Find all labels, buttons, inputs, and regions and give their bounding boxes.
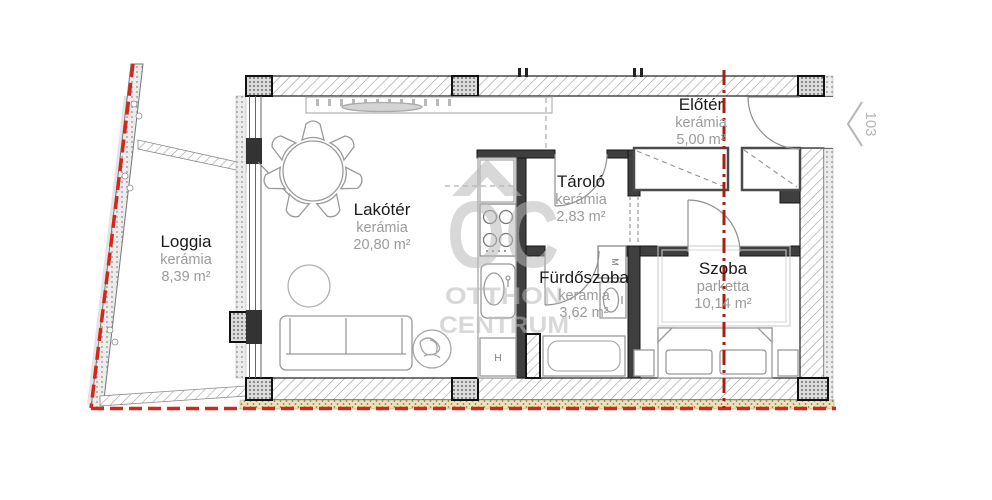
room-area: 5,00 m² — [675, 132, 727, 149]
bed — [658, 328, 772, 378]
washer-label: M — [610, 258, 620, 266]
floor-plan-drawing: OC OTTHON CENTRUM ® 103 H M — [0, 0, 992, 500]
room-name: Szoba — [694, 259, 751, 279]
dining-table — [262, 121, 364, 221]
room-name: Tároló — [555, 172, 607, 192]
nightstand-left — [634, 350, 654, 376]
loggia-top-rail — [138, 140, 246, 172]
sideboard-radiator — [306, 97, 552, 113]
entrance-door — [748, 97, 800, 149]
room-area: 8,39 m² — [160, 269, 212, 286]
room-area: 20,80 m² — [353, 237, 410, 254]
unit-direction-chevron-icon — [848, 102, 862, 146]
room-label-szoba: Szoba parketta 10,14 m² — [694, 259, 751, 312]
pillow-right — [720, 350, 766, 374]
right-wall — [800, 148, 824, 400]
pillow-left — [666, 350, 712, 374]
wardrobes — [634, 148, 800, 190]
wall-szoba-top-left — [640, 246, 688, 256]
sofa — [280, 316, 412, 370]
unit-number: 103 — [862, 111, 879, 136]
floor-plan: OC OTTHON CENTRUM ® 103 H M Loggia kerám… — [0, 0, 992, 500]
right-insulation — [824, 148, 833, 400]
room-label-loggia: Loggia kerámia 8,39 m² — [160, 232, 212, 285]
room-area: 2,83 m² — [555, 209, 607, 226]
room-name: Előtér — [675, 95, 727, 115]
room-label-eloter: Előtér kerámia 5,00 m² — [675, 95, 727, 148]
room-floor: kerámia — [539, 288, 629, 305]
room-area: 3,62 m² — [539, 305, 629, 322]
right-insulation-top — [824, 76, 833, 96]
round-rug — [288, 265, 330, 307]
bedroom-door — [688, 200, 740, 252]
wall-tarolo-top-left — [477, 150, 555, 158]
duct-shaft — [526, 334, 540, 378]
loggia-bottom-rail — [100, 386, 246, 406]
room-floor: parketta — [694, 279, 751, 296]
wall-stub-top — [246, 138, 262, 164]
wall-stub-bottom — [246, 310, 262, 344]
room-name: Lakótér — [353, 200, 410, 220]
room-floor: kerámia — [675, 115, 727, 132]
room-name: Loggia — [160, 232, 212, 252]
room-floor: kerámia — [555, 192, 607, 209]
room-floor: kerámia — [353, 220, 410, 237]
wall-szoba-top-right — [740, 246, 800, 256]
top-wall — [246, 76, 824, 96]
nightstand-right — [778, 350, 798, 376]
bottom-wall — [246, 378, 824, 400]
room-label-furdoszoba: Fürdőszoba kerámia 3,62 m² — [539, 268, 629, 321]
room-floor: kerámia — [160, 252, 212, 269]
wall-tarolo-top-right — [607, 150, 628, 158]
fridge-label: H — [494, 353, 501, 364]
room-label-lakoter: Lakótér kerámia 20,80 m² — [353, 200, 410, 253]
room-name: Fürdőszoba — [539, 268, 629, 288]
room-area: 10,14 m² — [694, 296, 751, 313]
shower-tub — [543, 336, 625, 376]
room-label-tarolo: Tároló kerámia 2,83 m² — [555, 172, 607, 225]
